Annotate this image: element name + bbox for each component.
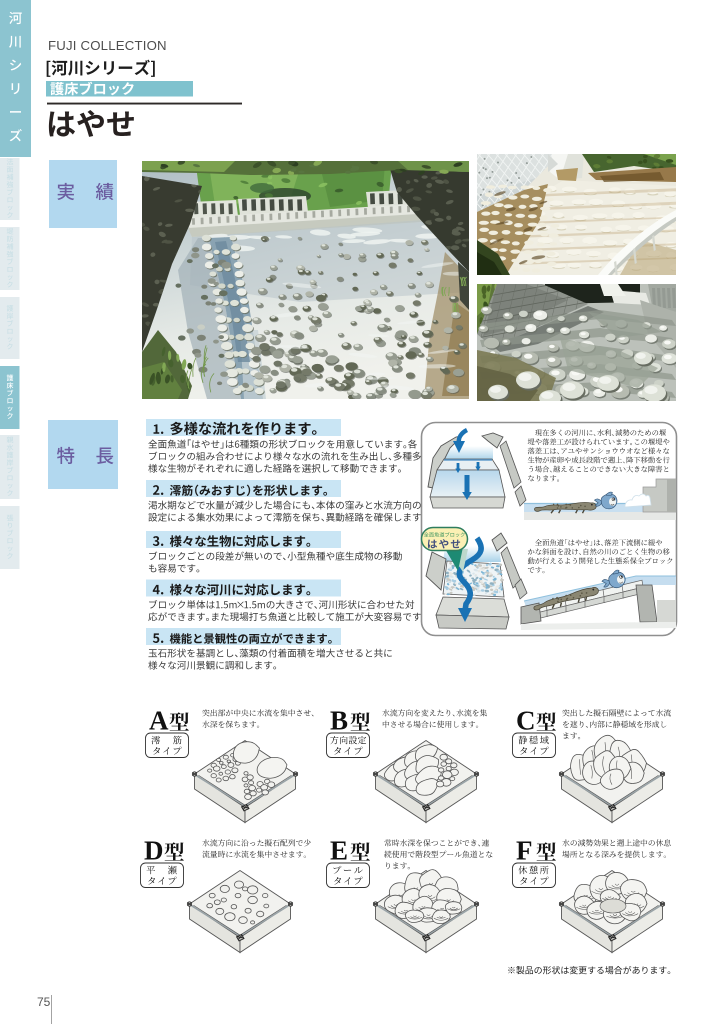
svg-text:D: D xyxy=(144,836,164,866)
svg-text:75: 75 xyxy=(37,995,51,1009)
svg-text:B: B xyxy=(330,706,348,736)
svg-text:F: F xyxy=(516,836,533,866)
svg-text:E: E xyxy=(330,836,348,866)
svg-text:A: A xyxy=(149,706,169,736)
svg-text:FUJI COLLECTION: FUJI COLLECTION xyxy=(48,38,167,53)
svg-text:C: C xyxy=(516,706,536,736)
